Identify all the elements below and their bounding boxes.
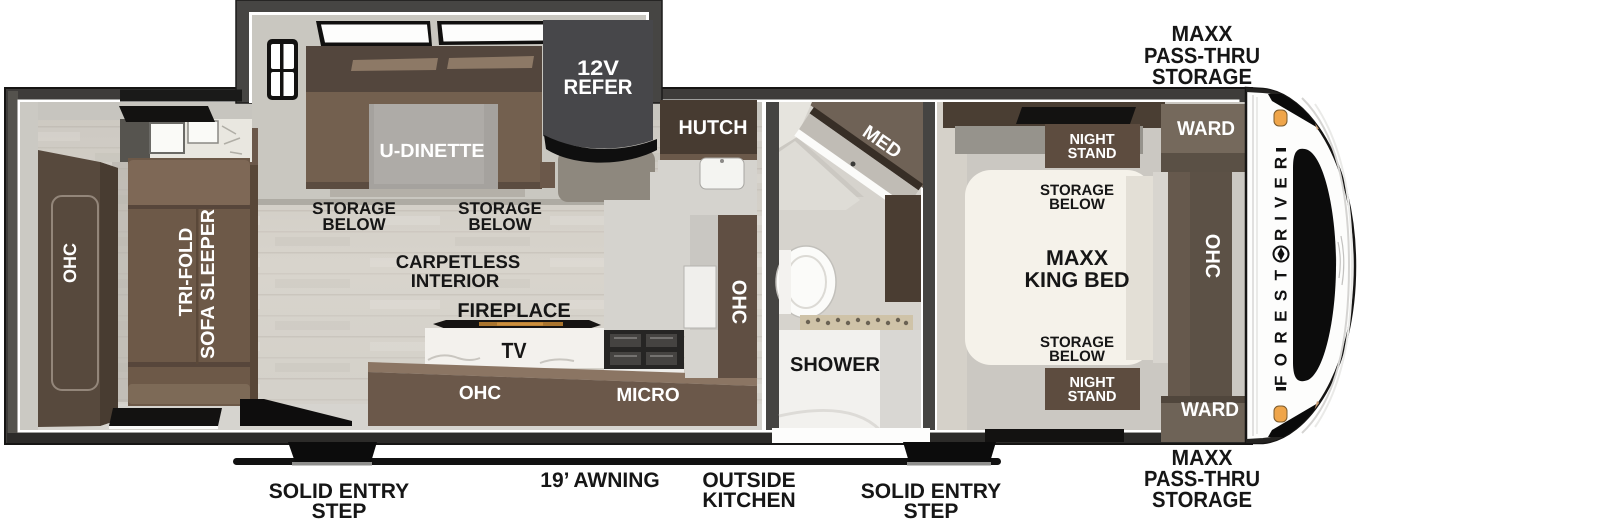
svg-text:KING BED: KING BED: [1024, 268, 1129, 292]
svg-text:SHOWER: SHOWER: [790, 354, 881, 376]
svg-text:OHC: OHC: [1201, 234, 1223, 278]
svg-text:STEP: STEP: [312, 500, 367, 523]
svg-text:TRI-FOLD: TRI-FOLD: [176, 228, 197, 317]
svg-text:STAND: STAND: [1068, 389, 1117, 405]
svg-text:REFER: REFER: [564, 76, 633, 99]
svg-text:OHC: OHC: [60, 243, 80, 283]
svg-text:MICRO: MICRO: [616, 385, 679, 406]
svg-text:MAXX: MAXX: [1046, 246, 1109, 270]
svg-text:WARD: WARD: [1181, 399, 1239, 421]
svg-text:SOFA SLEEPER: SOFA SLEEPER: [198, 209, 219, 359]
svg-text:STEP: STEP: [904, 500, 959, 523]
svg-text:WARD: WARD: [1177, 118, 1235, 140]
svg-text:KITCHEN: KITCHEN: [702, 489, 795, 512]
svg-text:BELOW: BELOW: [322, 215, 386, 234]
svg-text:CARPETLESS: CARPETLESS: [396, 251, 520, 272]
svg-text:BELOW: BELOW: [468, 215, 532, 234]
svg-text:STAND: STAND: [1068, 146, 1117, 162]
svg-text:U-DINETTE: U-DINETTE: [380, 141, 485, 162]
svg-text:BELOW: BELOW: [1049, 348, 1106, 365]
svg-text:OHC: OHC: [459, 383, 502, 404]
svg-text:INTERIOR: INTERIOR: [411, 270, 499, 291]
svg-text:BELOW: BELOW: [1049, 196, 1106, 213]
svg-text:HUTCH: HUTCH: [679, 117, 748, 139]
svg-text:19’ AWNING: 19’ AWNING: [540, 469, 659, 492]
svg-text:OHC: OHC: [728, 280, 750, 324]
svg-text:TV: TV: [502, 338, 527, 363]
svg-text:STORAGE: STORAGE: [1152, 487, 1252, 512]
svg-text:FIREPLACE: FIREPLACE: [457, 300, 570, 322]
svg-text:STORAGE: STORAGE: [1152, 64, 1252, 89]
